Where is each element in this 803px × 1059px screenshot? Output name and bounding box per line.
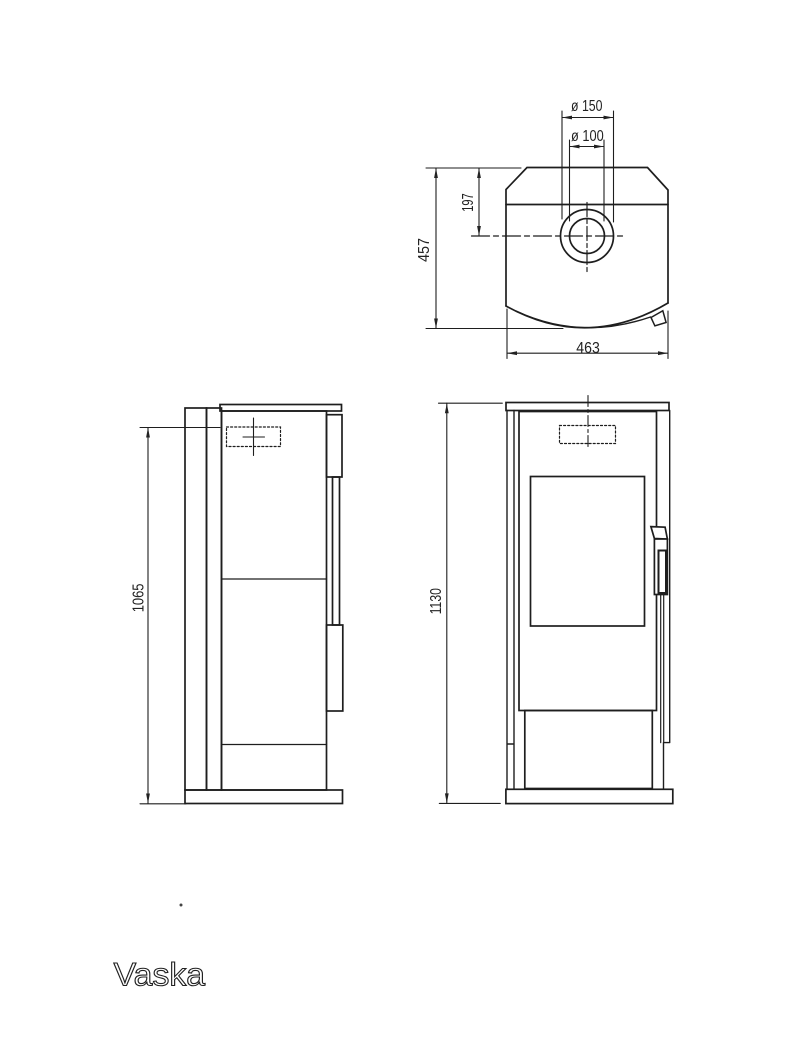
svg-text:1065: 1065	[130, 583, 148, 612]
svg-text:Vaska: Vaska	[114, 956, 206, 992]
svg-text:197: 197	[459, 193, 476, 211]
svg-text:ø 150: ø 150	[571, 98, 603, 116]
svg-text:ø 100: ø 100	[571, 128, 604, 146]
svg-text:1130: 1130	[427, 588, 445, 614]
svg-text:463: 463	[576, 339, 599, 357]
svg-text:457: 457	[415, 238, 433, 262]
